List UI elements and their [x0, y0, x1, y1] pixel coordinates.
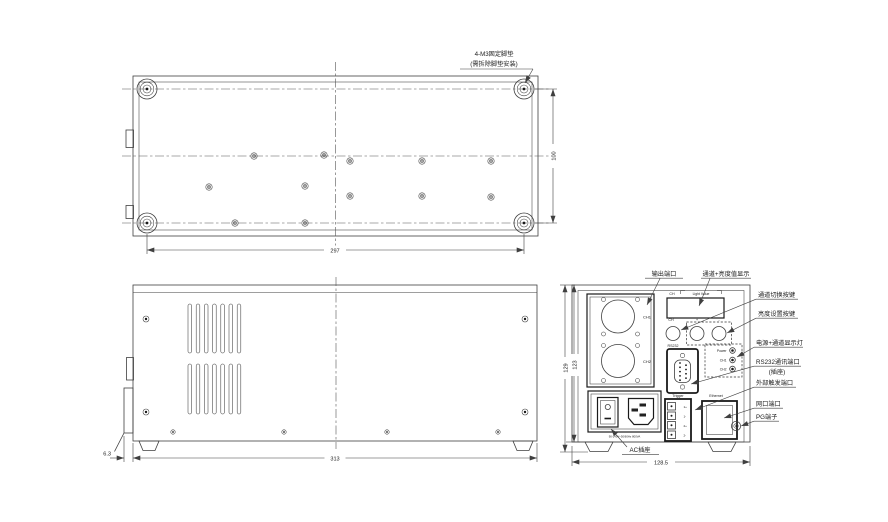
- ch2-label: CH2: [643, 359, 652, 364]
- side-view: 313 6.3: [103, 277, 537, 463]
- iec-socket: [629, 399, 654, 425]
- channel-brightness-display: CH Light Value: [667, 291, 724, 318]
- trigger-pin-label: 2-: [684, 434, 687, 438]
- svg-text:输出端口: 输出端口: [652, 270, 677, 278]
- svg-text:电源+通道显示灯: 电源+通道显示灯: [756, 339, 803, 347]
- mounting-foot: [514, 213, 534, 233]
- svg-text:AC插座: AC插座: [630, 446, 651, 454]
- vent-slots: [188, 304, 241, 414]
- rear-view: CH1 CH2 CH Light Value CH + - RS232: [560, 285, 750, 467]
- foot: [513, 441, 533, 451]
- led-ch1-label: CH1: [720, 359, 727, 363]
- screw-holes: [143, 316, 528, 434]
- callout-display: 通道+亮度值显示: [699, 270, 751, 306]
- callout-pg: PG端子: [741, 413, 779, 426]
- brightness-up-button: [690, 327, 704, 341]
- svg-text:通道切换按键: 通道切换按键: [758, 291, 795, 299]
- foot: [585, 442, 613, 452]
- trigger-pin-label: 1+: [684, 405, 688, 409]
- callout-brightness-set: 亮度设置按键: [727, 310, 798, 333]
- svg-text:通道+亮度值显示: 通道+亮度值显示: [703, 270, 750, 278]
- screw-holes: [206, 152, 494, 226]
- mounting-foot: [514, 79, 534, 99]
- dimension-side-length: 313: [124, 436, 537, 463]
- svg-text:外部触发端口: 外部触发端口: [756, 379, 793, 387]
- trigger-terminal: Trigger 1+ 1- 2+ 2-: [665, 394, 691, 441]
- led-ch2-label: CH2: [720, 368, 727, 372]
- ethernet-label: Ethernet: [709, 394, 723, 398]
- callout-indicator: 电源+通道显示灯: [737, 339, 803, 357]
- dim-rear-width-text: 128.5: [654, 461, 668, 467]
- svg-text:PG端子: PG端子: [756, 413, 777, 421]
- ac-rating-text: 90-240V~50/60Hz 800VA: [609, 435, 641, 439]
- mounting-foot: [137, 79, 157, 99]
- dim-top-width-text: 297: [330, 249, 339, 255]
- trigger-pin-label: 2+: [684, 424, 688, 428]
- dimension-side-offset: 6.3: [103, 452, 124, 459]
- svg-text:网口端口: 网口端口: [756, 400, 781, 408]
- dim-rear-body-text: 123: [572, 360, 578, 369]
- svg-text:亮度设置按键: 亮度设置按键: [758, 310, 795, 318]
- drawing-svg: 4-M3固定脚垫 (需拆除脚垫安装) 297 100: [0, 0, 888, 522]
- dsub-pins: [679, 362, 687, 381]
- power-led: [730, 348, 736, 354]
- channel-button-label: CH: [668, 318, 674, 322]
- trigger-screws: [668, 403, 676, 439]
- rs232-connector: RS232: [667, 344, 698, 393]
- feet-note-line1: 4-M3固定脚垫: [475, 50, 515, 58]
- ch2-led: [730, 366, 736, 372]
- led-indicators: Power CH1 CH2: [705, 344, 742, 377]
- foot: [708, 442, 736, 452]
- output-connector-panel: CH1 CH2: [587, 294, 654, 387]
- trigger-label: Trigger: [672, 394, 684, 398]
- control-buttons: CH + -: [666, 317, 732, 345]
- side-tab: [126, 130, 134, 148]
- pg-terminal: [731, 421, 740, 430]
- ch2-output-connector: [602, 345, 635, 378]
- side-tab: [126, 206, 134, 219]
- trigger-pin-label: 1-: [684, 415, 687, 419]
- feet-note-line2: (需拆除脚垫安装): [470, 60, 517, 68]
- display-ch-label: CH: [669, 292, 675, 296]
- svg-text:RS232通讯端口: RS232通讯端口: [756, 358, 800, 366]
- ch1-label: CH1: [643, 315, 652, 320]
- brightness-down-button: [712, 327, 726, 341]
- brightness-buttons-box: [687, 322, 732, 345]
- display-window: [667, 298, 724, 318]
- display-title: Light Value: [693, 292, 710, 296]
- dsub-shell: [675, 360, 691, 383]
- power-switch: [598, 398, 619, 428]
- dim-rear-total-text: 129: [563, 363, 569, 372]
- rs232-label: RS232: [668, 344, 679, 348]
- callout-output-port: 输出端口: [645, 270, 683, 305]
- dimension-rear-width: 128.5: [572, 446, 750, 467]
- panel-screws: [602, 298, 640, 383]
- top-view: 4-M3固定脚垫 (需拆除脚垫安装) 297 100: [122, 50, 558, 255]
- svg-text:(插座): (插座): [769, 368, 786, 376]
- led-power-label: Power: [717, 349, 727, 353]
- dim-side-offset-text: 6.3: [103, 452, 111, 458]
- mounting-foot: [137, 213, 157, 233]
- ch1-output-connector: [602, 300, 635, 333]
- technical-drawing-canvas: 4-M3固定脚垫 (需拆除脚垫安装) 297 100: [0, 0, 888, 522]
- dim-top-depth-text: 100: [551, 151, 557, 160]
- ac-inlet-module: 90-240V~50/60Hz 800VA: [588, 391, 661, 439]
- feet-note: 4-M3固定脚垫 (需拆除脚垫安装): [460, 50, 533, 83]
- side-view-outline: [133, 285, 537, 441]
- ch1-led: [730, 357, 736, 363]
- dim-side-length-text: 313: [330, 457, 339, 463]
- channel-button: [666, 327, 680, 341]
- foot: [139, 441, 159, 451]
